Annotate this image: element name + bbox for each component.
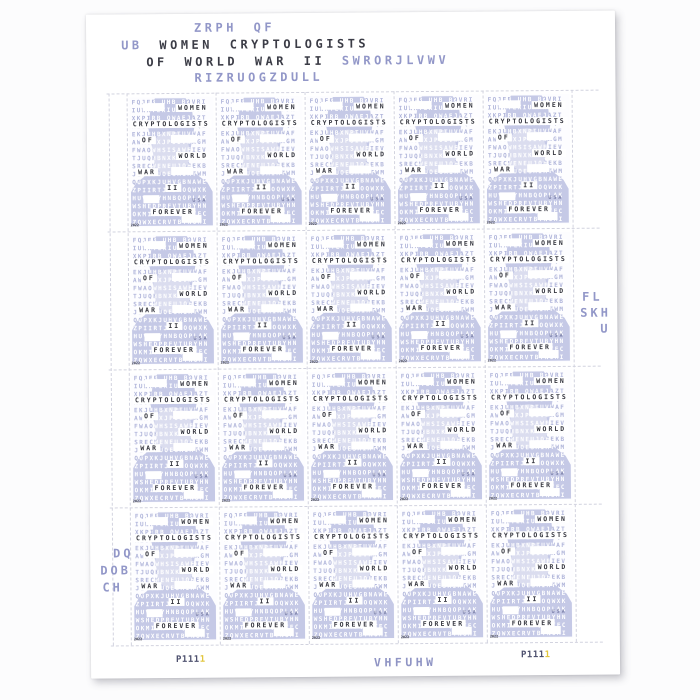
- knockout-patch: [349, 165, 371, 173]
- header-spacer: [325, 54, 342, 68]
- stamp-word-ii: II: [432, 182, 448, 190]
- stamp-word-usa: USA: [369, 333, 388, 341]
- stamp-word-usa: USA: [281, 472, 300, 480]
- stamp-word-usa: USA: [461, 609, 480, 617]
- knockout-patch: [440, 409, 466, 417]
- stamp-word-ii: II: [434, 458, 450, 466]
- knockout-patch: [350, 271, 376, 279]
- stamp-word-war: WAR: [226, 305, 248, 313]
- knockout-patch: [174, 549, 200, 557]
- knockout-patch: [235, 470, 251, 478]
- stamp-word-world: WORLD: [444, 288, 478, 296]
- stamp-word-women: WOMEN: [445, 378, 479, 386]
- knockout-patch: [232, 194, 248, 202]
- stamp-word-usa: USA: [280, 334, 299, 342]
- selvage-cipher-right: FLSKHU: [580, 289, 611, 337]
- stamp-word-women: WOMEN: [177, 242, 211, 250]
- stamp: FQJEB UHB BOVRI IUWATEXIUWANTJR XKPIRB O…: [486, 232, 572, 363]
- stamp-word-cryptologists: CRYPTOLOGISTS: [220, 119, 301, 128]
- stamp-word-forever: FOREVER: [330, 344, 375, 352]
- stamp: FQJEB UHB BOVRI IUWATEXIUWANTJR XKPIRB O…: [307, 95, 393, 226]
- knockout-patch: [260, 166, 282, 174]
- stamp-word-of: OF: [142, 412, 158, 420]
- stamp-word-ii: II: [256, 459, 272, 467]
- stamp-word-war: WAR: [314, 167, 336, 175]
- stamp: FQJEB UHB BOVRI IUWATEXIUWANTJR XKPIRB O…: [396, 95, 482, 226]
- knockout-patch: [413, 515, 435, 523]
- stamp-year: 2022: [490, 634, 498, 638]
- knockout-patch: [362, 489, 382, 497]
- knockout-patch: [146, 517, 168, 525]
- header-cipher-line-2: SWRORJLVWV: [342, 53, 449, 68]
- stamp-word-of: OF: [409, 410, 425, 418]
- stamp-word-world: WORLD: [356, 288, 390, 296]
- stamp-word-women: WOMEN: [357, 516, 391, 524]
- knockout-patch: [438, 133, 464, 141]
- knockout-patch: [172, 273, 198, 281]
- stamp: FQJEB UHB BOVRI IUWATEXIUWANTJR XKPIRB O…: [218, 96, 304, 227]
- knockout-patch: [411, 331, 427, 339]
- stamp-word-of: OF: [320, 411, 336, 419]
- knockout-patch: [272, 352, 292, 360]
- stamp-word-forever: FOREVER: [420, 482, 465, 490]
- stamp-year: 2022: [220, 223, 228, 227]
- stamp-word-women: WOMEN: [533, 239, 567, 247]
- selvage-right-line-1: FL: [582, 290, 603, 304]
- stamp-year: 2022: [310, 360, 318, 364]
- stamp-year: 2022: [399, 359, 407, 363]
- stamp-word-world: WORLD: [447, 564, 481, 572]
- stamp-word-forever: FOREVER: [241, 345, 286, 353]
- stamp-word-world: WORLD: [265, 151, 299, 159]
- stamp-word-usa: USA: [370, 471, 389, 479]
- stamp-word-of: OF: [318, 135, 334, 143]
- knockout-patch: [233, 332, 249, 340]
- stamp-word-women: WOMEN: [356, 378, 390, 386]
- stamp-word-world: WORLD: [267, 289, 301, 297]
- stamp-word-ii: II: [433, 320, 449, 328]
- knockout-patch: [263, 580, 285, 588]
- stamp-word-women: WOMEN: [265, 103, 299, 111]
- stamp-word-usa: USA: [550, 608, 569, 616]
- knockout-patch: [530, 546, 556, 554]
- stamp-word-women: WOMEN: [176, 104, 210, 112]
- stamp-word-forever: FOREVER: [332, 620, 377, 628]
- stamp-word-ii: II: [522, 319, 538, 327]
- knockout-patch: [540, 488, 560, 496]
- stamp-word-world: WORLD: [533, 287, 567, 295]
- stamp-word-ii: II: [435, 596, 451, 604]
- stamp-word-forever: FOREVER: [154, 622, 199, 630]
- knockout-patch: [173, 411, 199, 419]
- knockout-patch: [147, 609, 163, 617]
- stamp-word-usa: USA: [368, 195, 387, 203]
- stamp-word-women: WOMEN: [444, 240, 478, 248]
- plate-number-right: P1111: [521, 650, 551, 660]
- knockout-patch: [261, 304, 283, 312]
- knockout-patch: [322, 240, 344, 248]
- plate-number-yellow-digit: 1: [200, 655, 206, 665]
- stamp-word-forever: FOREVER: [239, 207, 284, 215]
- knockout-patch: [410, 193, 426, 201]
- stamp-word-usa: USA: [372, 609, 391, 617]
- knockout-patch: [352, 547, 378, 555]
- stamp-word-war: WAR: [495, 579, 517, 587]
- stamp: FQJEB UHB BOVRI IUWATEXIUWANTJR XKPIRB O…: [308, 233, 394, 364]
- stamp-word-of: OF: [231, 411, 247, 419]
- stamp-word-usa: USA: [283, 610, 302, 618]
- stamp: FQJEB UHB BOVRI IUWATEXIUWANTJR XKPIRB O…: [309, 371, 395, 502]
- knockout-patch: [503, 606, 519, 614]
- knockout-patch: [527, 164, 549, 172]
- stamp-word-forever: FOREVER: [150, 208, 195, 216]
- stamp-word-world: WORLD: [354, 150, 388, 158]
- stamp-word-usa: USA: [546, 194, 565, 202]
- knockout-patch: [146, 471, 162, 479]
- stamp-word-women: WOMEN: [179, 518, 213, 526]
- stamp-word-world: WORLD: [357, 426, 391, 434]
- stamp-word-of: OF: [321, 549, 337, 557]
- stamp-word-war: WAR: [315, 305, 337, 313]
- stamp-word-forever: FOREVER: [421, 620, 466, 628]
- knockout-patch: [501, 468, 517, 476]
- knockout-patch: [274, 628, 294, 636]
- stamp-year: 2022: [311, 498, 319, 502]
- knockout-patch: [273, 490, 293, 498]
- stamp-word-war: WAR: [136, 168, 158, 176]
- stamp-word-ii: II: [344, 321, 360, 329]
- knockout-patch: [233, 240, 255, 248]
- stamp-year: 2022: [221, 361, 229, 365]
- knockout-patch: [234, 378, 256, 386]
- stamp-word-cryptologists: CRYPTOLOGISTS: [134, 534, 215, 543]
- stamp-word-forever: FOREVER: [242, 483, 287, 491]
- stamp-year: 2022: [398, 221, 406, 225]
- stamp-word-cryptologists: CRYPTOLOGISTS: [132, 258, 213, 267]
- knockout-patch: [363, 627, 383, 635]
- stamp-word-of: OF: [319, 273, 335, 281]
- knockout-patch: [351, 441, 373, 449]
- knockout-patch: [527, 132, 553, 140]
- stamp-word-war: WAR: [493, 303, 515, 311]
- stamp-word-of: OF: [229, 135, 245, 143]
- stamp: FQJEB UHB BOVRI IUWATEXIUWANTJR XKPIRB O…: [219, 234, 305, 365]
- knockout-patch: [349, 133, 375, 141]
- stamp-word-usa: USA: [457, 195, 476, 203]
- stamp-word-usa: USA: [459, 471, 478, 479]
- knockout-patch: [440, 441, 462, 449]
- plate-number-yellow-digit: 1: [545, 650, 551, 660]
- knockout-patch: [143, 195, 159, 203]
- selvage-left-line-2: DOB: [100, 563, 131, 577]
- stamp-word-war: WAR: [138, 444, 160, 452]
- knockout-patch: [441, 579, 463, 587]
- selvage-left-line-3: CH: [102, 580, 123, 594]
- header-line-3: OF WORLD WAR II SWRORJLVWV: [146, 53, 449, 69]
- knockout-patch: [414, 607, 430, 615]
- stamp-word-ii: II: [521, 181, 537, 189]
- stamp-word-world: WORLD: [536, 563, 570, 571]
- stamp-word-usa: USA: [547, 332, 566, 340]
- knockout-patch: [529, 440, 551, 448]
- stamp-word-war: WAR: [405, 442, 427, 450]
- knockout-patch: [143, 103, 165, 111]
- knockout-patch: [171, 167, 193, 175]
- stamp-word-cryptologists: CRYPTOLOGISTS: [310, 256, 391, 265]
- stamp-word-women: WOMEN: [355, 240, 389, 248]
- knockout-patch: [450, 351, 470, 359]
- stamp-word-women: WOMEN: [178, 380, 212, 388]
- stamp-word-forever: FOREVER: [328, 206, 373, 214]
- selvage-cipher-left: DQDOBCH: [100, 545, 134, 596]
- stamp-word-usa: USA: [194, 611, 213, 619]
- plate-number-left: P1111: [176, 655, 206, 665]
- knockout-patch: [410, 101, 432, 109]
- stamp-word-ii: II: [255, 321, 271, 329]
- stamp-word-war: WAR: [139, 582, 161, 590]
- stamp-word-women: WOMEN: [354, 102, 388, 110]
- knockout-patch: [172, 305, 194, 313]
- stamp-word-women: WOMEN: [535, 515, 569, 523]
- stamp-word-war: WAR: [137, 306, 159, 314]
- knockout-patch: [441, 547, 467, 555]
- stamp-year: 2022: [489, 496, 497, 500]
- sheet-title-line-1-text: WOMEN CRYPTOLOGISTS: [159, 36, 369, 52]
- stamp-word-world: WORLD: [269, 565, 303, 573]
- stamp-word-of: OF: [496, 133, 512, 141]
- knockout-patch: [499, 192, 515, 200]
- stamp-sheet: ZRPH QF UB WOMEN CRYPTOLOGISTS OF WORLD …: [86, 11, 620, 679]
- stamp-word-world: WORLD: [179, 428, 213, 436]
- stamp-word-cryptologists: CRYPTOLOGISTS: [490, 531, 571, 540]
- knockout-patch: [411, 239, 433, 247]
- stamp-word-of: OF: [230, 273, 246, 281]
- stamp-word-of: OF: [498, 409, 514, 417]
- stamp-word-women: WOMEN: [532, 101, 566, 109]
- knockout-patch: [528, 302, 550, 310]
- header-line-2: UB WOMEN CRYPTOLOGISTS: [121, 36, 369, 52]
- knockout-patch: [502, 514, 524, 522]
- stamp-year: 2022: [400, 497, 408, 501]
- stamp-word-world: WORLD: [180, 566, 214, 574]
- stamp-word-forever: FOREVER: [419, 344, 464, 352]
- knockout-patch: [321, 194, 337, 202]
- stamp-word-of: OF: [232, 549, 248, 557]
- header-cipher-line-1: ZRPH QF: [194, 20, 275, 35]
- knockout-patch: [145, 379, 167, 387]
- stamp-word-cryptologists: CRYPTOLOGISTS: [399, 256, 480, 265]
- stamp-word-usa: USA: [548, 470, 567, 478]
- stamp-word-war: WAR: [225, 167, 247, 175]
- stamp-word-war: WAR: [316, 443, 338, 451]
- stamp-word-ii: II: [346, 597, 362, 605]
- stamp-word-world: WORLD: [178, 290, 212, 298]
- stamp-word-world: WORLD: [446, 426, 480, 434]
- stamp-word-cryptologists: CRYPTOLOGISTS: [222, 395, 303, 404]
- stamp-word-women: WOMEN: [446, 516, 480, 524]
- stamp: FQJEB UHB BOVRI IUWATEXIUWANTJR XKPIRB O…: [130, 235, 216, 366]
- stamp: FQJEB UHB BOVRI IUWATEXIUWANTJR XKPIRB O…: [220, 372, 306, 503]
- knockout-patch: [325, 608, 341, 616]
- stamp-word-war: WAR: [227, 443, 249, 451]
- stamp-word-cryptologists: CRYPTOLOGISTS: [131, 120, 212, 129]
- stamp: FQJEB UHB BOVRI IUWATEXIUWANTJR XKPIRB O…: [488, 508, 574, 639]
- knockout-patch: [262, 442, 284, 450]
- knockout-patch: [451, 489, 471, 497]
- knockout-patch: [530, 578, 552, 586]
- stamp-word-cryptologists: CRYPTOLOGISTS: [488, 255, 569, 264]
- knockout-patch: [412, 377, 434, 385]
- stamp: FQJEB UHB BOVRI IUWATEXIUWANTJR XKPIRB O…: [485, 94, 571, 225]
- knockout-patch: [181, 215, 201, 223]
- stamp-word-cryptologists: CRYPTOLOGISTS: [398, 118, 479, 127]
- stamp-word-cryptologists: CRYPTOLOGISTS: [487, 117, 568, 126]
- stamp-word-forever: FOREVER: [510, 619, 555, 627]
- stamp-word-war: WAR: [492, 165, 514, 173]
- stamp-word-ii: II: [345, 459, 361, 467]
- knockout-patch: [499, 100, 521, 108]
- stamp-word-usa: USA: [191, 335, 210, 343]
- stamp-word-of: OF: [499, 547, 515, 555]
- knockout-patch: [324, 470, 340, 478]
- stamp: FQJEB UHB BOVRI IUWATEXIUWANTJR XKPIRB O…: [310, 509, 396, 640]
- stamp-word-forever: FOREVER: [153, 484, 198, 492]
- knockout-patch: [500, 330, 516, 338]
- stamp-word-cryptologists: CRYPTOLOGISTS: [489, 393, 570, 402]
- stamp: FQJEB UHB BOVRI IUWATEXIUWANTJR XKPIRB O…: [129, 97, 215, 228]
- stamp-year: 2022: [132, 361, 140, 365]
- stamp: FQJEB UHB BOVRI IUWATEXIUWANTJR XKPIRB O…: [399, 509, 485, 640]
- knockout-patch: [350, 303, 372, 311]
- stamp-word-world: WORLD: [176, 152, 210, 160]
- stamp-year: 2022: [223, 637, 231, 641]
- stamp-word-ii: II: [166, 322, 182, 330]
- sheet-title-line-1: [143, 38, 160, 52]
- stamp: FQJEB UHB BOVRI IUWATEXIUWANTJR XKPIRB O…: [221, 510, 307, 641]
- stamp-word-of: OF: [140, 136, 156, 144]
- stamp-word-usa: USA: [190, 197, 209, 205]
- knockout-patch: [500, 238, 522, 246]
- stamp-word-war: WAR: [228, 581, 250, 589]
- stamp-year: 2022: [488, 358, 496, 362]
- stamp-grid: FQJEB UHB BOVRI IUWATEXIUWANTJR XKPIRB O…: [129, 94, 574, 641]
- knockout-patch: [323, 378, 345, 386]
- plate-number-digits: P111: [521, 650, 545, 660]
- stamp-word-cryptologists: CRYPTOLOGISTS: [223, 533, 304, 542]
- knockout-patch: [438, 165, 460, 173]
- knockout-patch: [232, 102, 254, 110]
- stamp-word-women: WOMEN: [534, 377, 568, 385]
- knockout-patch: [359, 213, 379, 221]
- knockout-patch: [541, 626, 561, 634]
- knockout-patch: [412, 469, 428, 477]
- stamp-word-cryptologists: CRYPTOLOGISTS: [401, 532, 482, 541]
- plate-number-digits: P111: [176, 655, 200, 665]
- knockout-patch: [144, 241, 166, 249]
- stamp-word-of: OF: [410, 548, 426, 556]
- selvage-cipher-bottom: VHFUHW: [374, 655, 437, 669]
- stamp-word-cryptologists: CRYPTOLOGISTS: [311, 394, 392, 403]
- knockout-patch: [439, 303, 461, 311]
- stamp: FQJEB UHB BOVRI IUWATEXIUWANTJR XKPIRB O…: [132, 511, 218, 642]
- knockout-patch: [324, 516, 346, 524]
- stamp-word-usa: USA: [458, 333, 477, 341]
- stamp-word-cryptologists: CRYPTOLOGISTS: [221, 257, 302, 266]
- stamp-word-forever: FOREVER: [417, 206, 462, 214]
- knockout-patch: [144, 333, 160, 341]
- knockout-patch: [260, 134, 286, 142]
- stamp-word-war: WAR: [404, 304, 426, 312]
- stamp-year: 2022: [134, 637, 142, 641]
- stamp-word-women: WOMEN: [267, 379, 301, 387]
- stamp-word-forever: FOREVER: [508, 343, 553, 351]
- stamp-year: 2022: [401, 635, 409, 639]
- stamp-word-women: WOMEN: [266, 241, 300, 249]
- stamp-word-war: WAR: [317, 581, 339, 589]
- stamp-word-women: WOMEN: [443, 102, 477, 110]
- sheet-title-line-2: OF WORLD WAR II: [146, 54, 325, 69]
- stamp-word-cryptologists: CRYPTOLOGISTS: [133, 396, 214, 405]
- stamp-word-usa: USA: [192, 473, 211, 481]
- knockout-patch: [171, 135, 197, 143]
- knockout-patch: [448, 213, 468, 221]
- knockout-patch: [539, 350, 559, 358]
- stamp-word-of: OF: [408, 272, 424, 280]
- knockout-patch: [236, 608, 252, 616]
- knockout-patch: [537, 212, 557, 220]
- stamp-word-forever: FOREVER: [243, 621, 288, 629]
- stamp-word-ii: II: [165, 184, 181, 192]
- stamp-year: 2022: [131, 223, 139, 227]
- knockout-patch: [351, 409, 377, 417]
- selvage-left-line-1: DQ: [113, 546, 134, 560]
- knockout-patch: [235, 516, 257, 524]
- knockout-patch: [184, 491, 204, 499]
- stamp-word-cryptologists: CRYPTOLOGISTS: [309, 118, 390, 127]
- stamp-year: 2022: [487, 220, 495, 224]
- header-cipher-prefix: UB: [121, 38, 143, 52]
- stamp-word-world: WORLD: [532, 149, 566, 157]
- stamp-word-of: OF: [143, 550, 159, 558]
- stamp-word-cryptologists: CRYPTOLOGISTS: [400, 394, 481, 403]
- stamp-word-ii: II: [523, 457, 539, 465]
- stamp-word-ii: II: [254, 183, 270, 191]
- header-cipher-line-3: RIZRUOGZDULL: [194, 70, 323, 85]
- stamp-word-ii: II: [524, 595, 540, 603]
- knockout-patch: [439, 271, 465, 279]
- knockout-patch: [174, 581, 196, 589]
- stamp-word-world: WORLD: [268, 427, 302, 435]
- stamp-year: 2022: [309, 222, 317, 226]
- selvage-right-line-2: SKH: [580, 306, 611, 320]
- stamp: FQJEB UHB BOVRI IUWATEXIUWANTJR XKPIRB O…: [487, 370, 573, 501]
- knockout-patch: [185, 629, 205, 637]
- knockout-patch: [501, 376, 523, 384]
- stamp-word-forever: FOREVER: [331, 482, 376, 490]
- knockout-patch: [529, 408, 555, 416]
- knockout-patch: [261, 272, 287, 280]
- stamp-year: 2022: [133, 499, 141, 503]
- stamp-word-world: WORLD: [358, 564, 392, 572]
- stamp-year: 2022: [222, 499, 230, 503]
- stamp-word-ii: II: [167, 460, 183, 468]
- stamp-word-forever: FOREVER: [506, 205, 551, 213]
- stamp-word-world: WORLD: [535, 425, 569, 433]
- stamp-word-of: OF: [497, 271, 513, 279]
- stamp-word-war: WAR: [403, 166, 425, 174]
- perforation-line: [111, 642, 603, 647]
- knockout-patch: [528, 270, 554, 278]
